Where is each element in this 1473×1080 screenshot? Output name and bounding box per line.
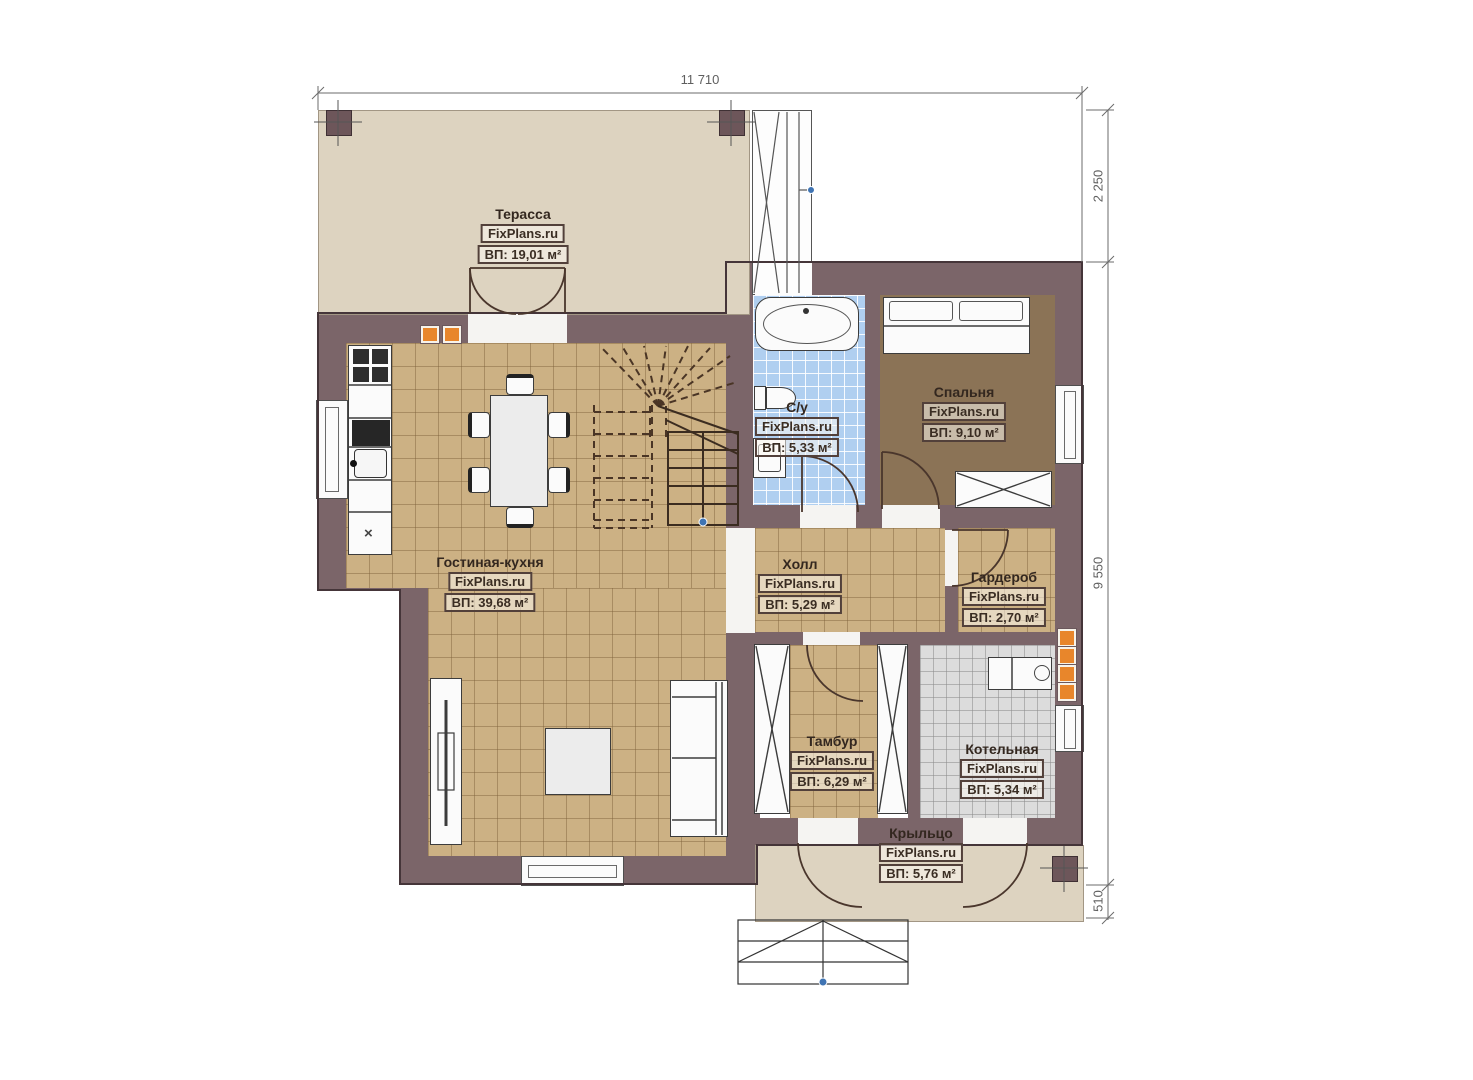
living-hall-opening xyxy=(726,528,755,633)
flue-marker xyxy=(443,326,461,343)
flue-marker xyxy=(1058,665,1076,683)
watermark-badge: FixPlans.ru xyxy=(448,572,532,591)
living-window xyxy=(521,856,624,886)
chair xyxy=(548,467,570,493)
room-name: Котельная xyxy=(960,741,1044,757)
dining-table xyxy=(490,395,548,507)
room-name: Холл xyxy=(758,556,842,572)
dimension-top: 11 710 xyxy=(660,72,740,87)
wall-right xyxy=(1055,295,1082,845)
room-label-living: Гостиная-кухня FixPlans.ru ВП: 39,68 м² xyxy=(436,554,543,614)
bedroom-door-opening xyxy=(882,505,940,528)
washer-mark: × xyxy=(364,525,373,542)
kitchen-sink xyxy=(354,449,387,478)
area-badge: ВП: 6,29 м² xyxy=(790,772,874,791)
watermark-badge: FixPlans.ru xyxy=(755,417,839,436)
area-badge: ВП: 9,10 м² xyxy=(922,423,1006,442)
dimension-right-upper: 2 250 xyxy=(1091,170,1106,203)
chimney-wall-inset xyxy=(755,262,812,295)
window-frame xyxy=(325,407,339,492)
watermark-badge: FixPlans.ru xyxy=(879,843,963,862)
area-badge: ВП: 5,33 м² xyxy=(755,438,839,457)
floor-plan-canvas: × xyxy=(0,0,1473,1080)
room-name: Гардероб xyxy=(962,569,1046,585)
dimension-right-main: 9 550 xyxy=(1091,557,1106,590)
stove-burner xyxy=(353,349,369,364)
chair xyxy=(548,412,570,438)
sofa xyxy=(670,680,728,837)
area-badge: ВП: 19,01 м² xyxy=(478,245,569,264)
watermark-badge: FixPlans.ru xyxy=(922,402,1006,421)
terrace-post xyxy=(326,110,352,136)
room-label-porch: Крыльцо FixPlans.ru ВП: 5,76 м² xyxy=(879,825,963,885)
watermark-badge: FixPlans.ru xyxy=(960,759,1044,778)
area-badge: ВП: 39,68 м² xyxy=(445,593,536,612)
pillow xyxy=(889,301,953,321)
area-badge: ВП: 5,76 м² xyxy=(879,864,963,883)
closet-left xyxy=(754,644,790,814)
window-frame xyxy=(1064,709,1077,750)
watermark-badge: FixPlans.ru xyxy=(962,587,1046,606)
boiler-dial xyxy=(1034,665,1050,681)
room-label-bedroom: Спальня FixPlans.ru ВП: 9,10 м² xyxy=(922,384,1006,444)
area-badge: ВП: 5,29 м² xyxy=(758,595,842,614)
bedroom-wardrobe-cabinet xyxy=(955,471,1052,508)
boiler-door-opening xyxy=(963,818,1027,845)
room-name: Крыльцо xyxy=(879,825,963,841)
front-door-opening xyxy=(798,818,858,845)
oven-unit xyxy=(352,420,390,446)
room-name: Гостиная-кухня xyxy=(436,554,543,570)
faucet-dot xyxy=(350,460,357,467)
kitchen-window xyxy=(316,400,348,499)
room-name: Спальня xyxy=(922,384,1006,400)
stove-burner xyxy=(353,367,369,382)
chair xyxy=(506,507,534,528)
room-name: Тамбур xyxy=(790,733,874,749)
wall-left-lower xyxy=(400,588,428,884)
window-frame xyxy=(1064,391,1077,459)
room-label-hall: Холл FixPlans.ru ВП: 5,29 м² xyxy=(758,556,842,616)
flue-marker xyxy=(421,326,439,343)
terrace-door-opening xyxy=(468,313,567,343)
tv-stand xyxy=(430,678,462,845)
room-label-vestibule: Тамбур FixPlans.ru ВП: 6,29 м² xyxy=(790,733,874,793)
coffee-table xyxy=(545,728,611,795)
closet-right xyxy=(877,644,908,814)
pillow xyxy=(959,301,1023,321)
watermark-badge: FixPlans.ru xyxy=(481,224,565,243)
bathroom-door-opening xyxy=(800,505,856,528)
terrace-post xyxy=(719,110,745,136)
flue-marker xyxy=(1058,629,1076,647)
stove-burner xyxy=(372,367,388,382)
window-frame xyxy=(528,865,617,878)
bedroom-window xyxy=(1055,385,1084,464)
room-name: Терасса xyxy=(478,206,569,222)
bathtub-faucet-dot xyxy=(803,308,809,314)
wall-bath-bedroom xyxy=(865,295,880,508)
flue-marker xyxy=(1058,647,1076,665)
room-label-terrace: Терасса FixPlans.ru ВП: 19,01 м² xyxy=(478,206,569,266)
stove-burner xyxy=(372,349,388,364)
chair xyxy=(506,374,534,395)
room-label-boiler: Котельная FixPlans.ru ВП: 5,34 м² xyxy=(960,741,1044,801)
area-badge: ВП: 2,70 м² xyxy=(962,608,1046,627)
porch-post xyxy=(1052,856,1078,882)
chair xyxy=(468,467,490,493)
watermark-badge: FixPlans.ru xyxy=(758,574,842,593)
porch-steps xyxy=(738,920,908,986)
wall-vestibule-boiler xyxy=(908,645,920,818)
vestibule-door-opening xyxy=(803,632,860,645)
room-label-bathroom: С/у FixPlans.ru ВП: 5,33 м² xyxy=(755,399,839,459)
watermark-badge: FixPlans.ru xyxy=(790,751,874,770)
room-name: С/у xyxy=(755,399,839,415)
room-label-wardrobe: Гардероб FixPlans.ru ВП: 2,70 м² xyxy=(962,569,1046,629)
boiler-window xyxy=(1055,705,1084,752)
dimension-right-lower: 510 xyxy=(1091,890,1106,912)
chair xyxy=(468,412,490,438)
area-badge: ВП: 5,34 м² xyxy=(960,780,1044,799)
flue-marker xyxy=(1058,683,1076,701)
wardrobe-door-opening xyxy=(945,530,958,586)
